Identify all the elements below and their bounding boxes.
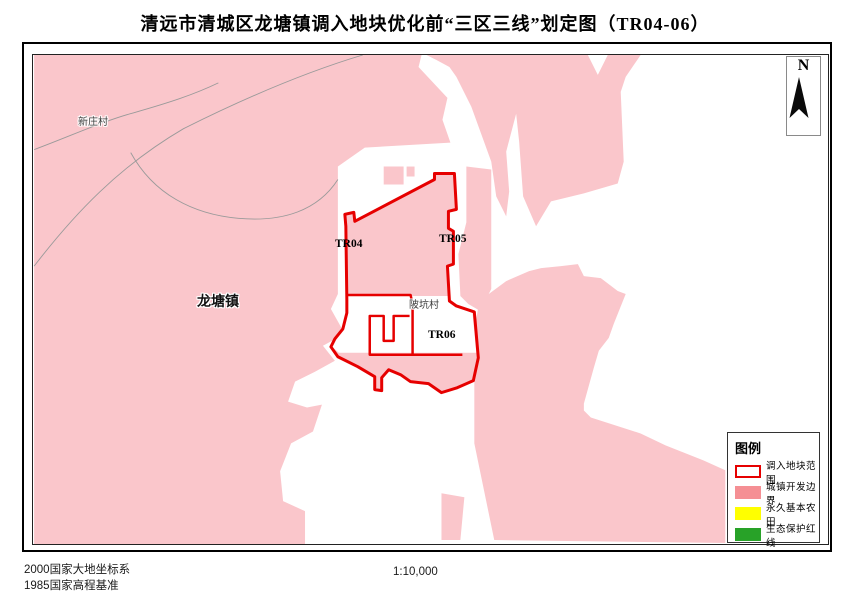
plot-boundary-swatch	[735, 465, 761, 478]
ecological-redline-swatch	[735, 528, 761, 541]
label-town-longtang: 龙塘镇	[197, 291, 239, 311]
legend: 图例 调入地块范围 城镇开发边界 永久基本农田 生态保护红线	[727, 432, 820, 543]
label-plot-tr06: TR06	[428, 329, 455, 341]
label-village-beikeng: 陂坑村	[409, 296, 439, 311]
map-scale: 1:10,000	[393, 566, 438, 578]
north-arrow: N	[786, 56, 821, 136]
datum-notes: 2000国家大地坐标系 1985国家高程基准	[24, 562, 130, 594]
page: 清远市清城区龙塘镇调入地块优化前“三区三线”划定图（TR04-06）	[0, 0, 850, 601]
farmland-swatch	[735, 507, 761, 520]
coordinate-system-note: 2000国家大地坐标系	[24, 562, 130, 578]
label-village-xinzhuang: 新庄村	[78, 113, 108, 128]
legend-item-ecological-redline: 生态保护红线	[735, 524, 819, 545]
outer-frame: 新庄村 龙塘镇 TR04 TR05 TR06 陂坑村 N 图例 调入地块范围	[22, 42, 832, 552]
label-plot-tr04: TR04	[335, 238, 362, 250]
label-plot-tr05: TR05	[439, 233, 466, 245]
urban-boundary-swatch	[735, 486, 761, 499]
north-arrow-icon	[787, 75, 811, 121]
map-title: 清远市清城区龙塘镇调入地块优化前“三区三线”划定图（TR04-06）	[0, 10, 850, 36]
north-label: N	[787, 57, 820, 75]
legend-title: 图例	[735, 438, 819, 457]
map-frame: 新庄村 龙塘镇 TR04 TR05 TR06 陂坑村 N 图例 调入地块范围	[32, 54, 829, 545]
elevation-datum-note: 1985国家高程基准	[24, 578, 130, 594]
